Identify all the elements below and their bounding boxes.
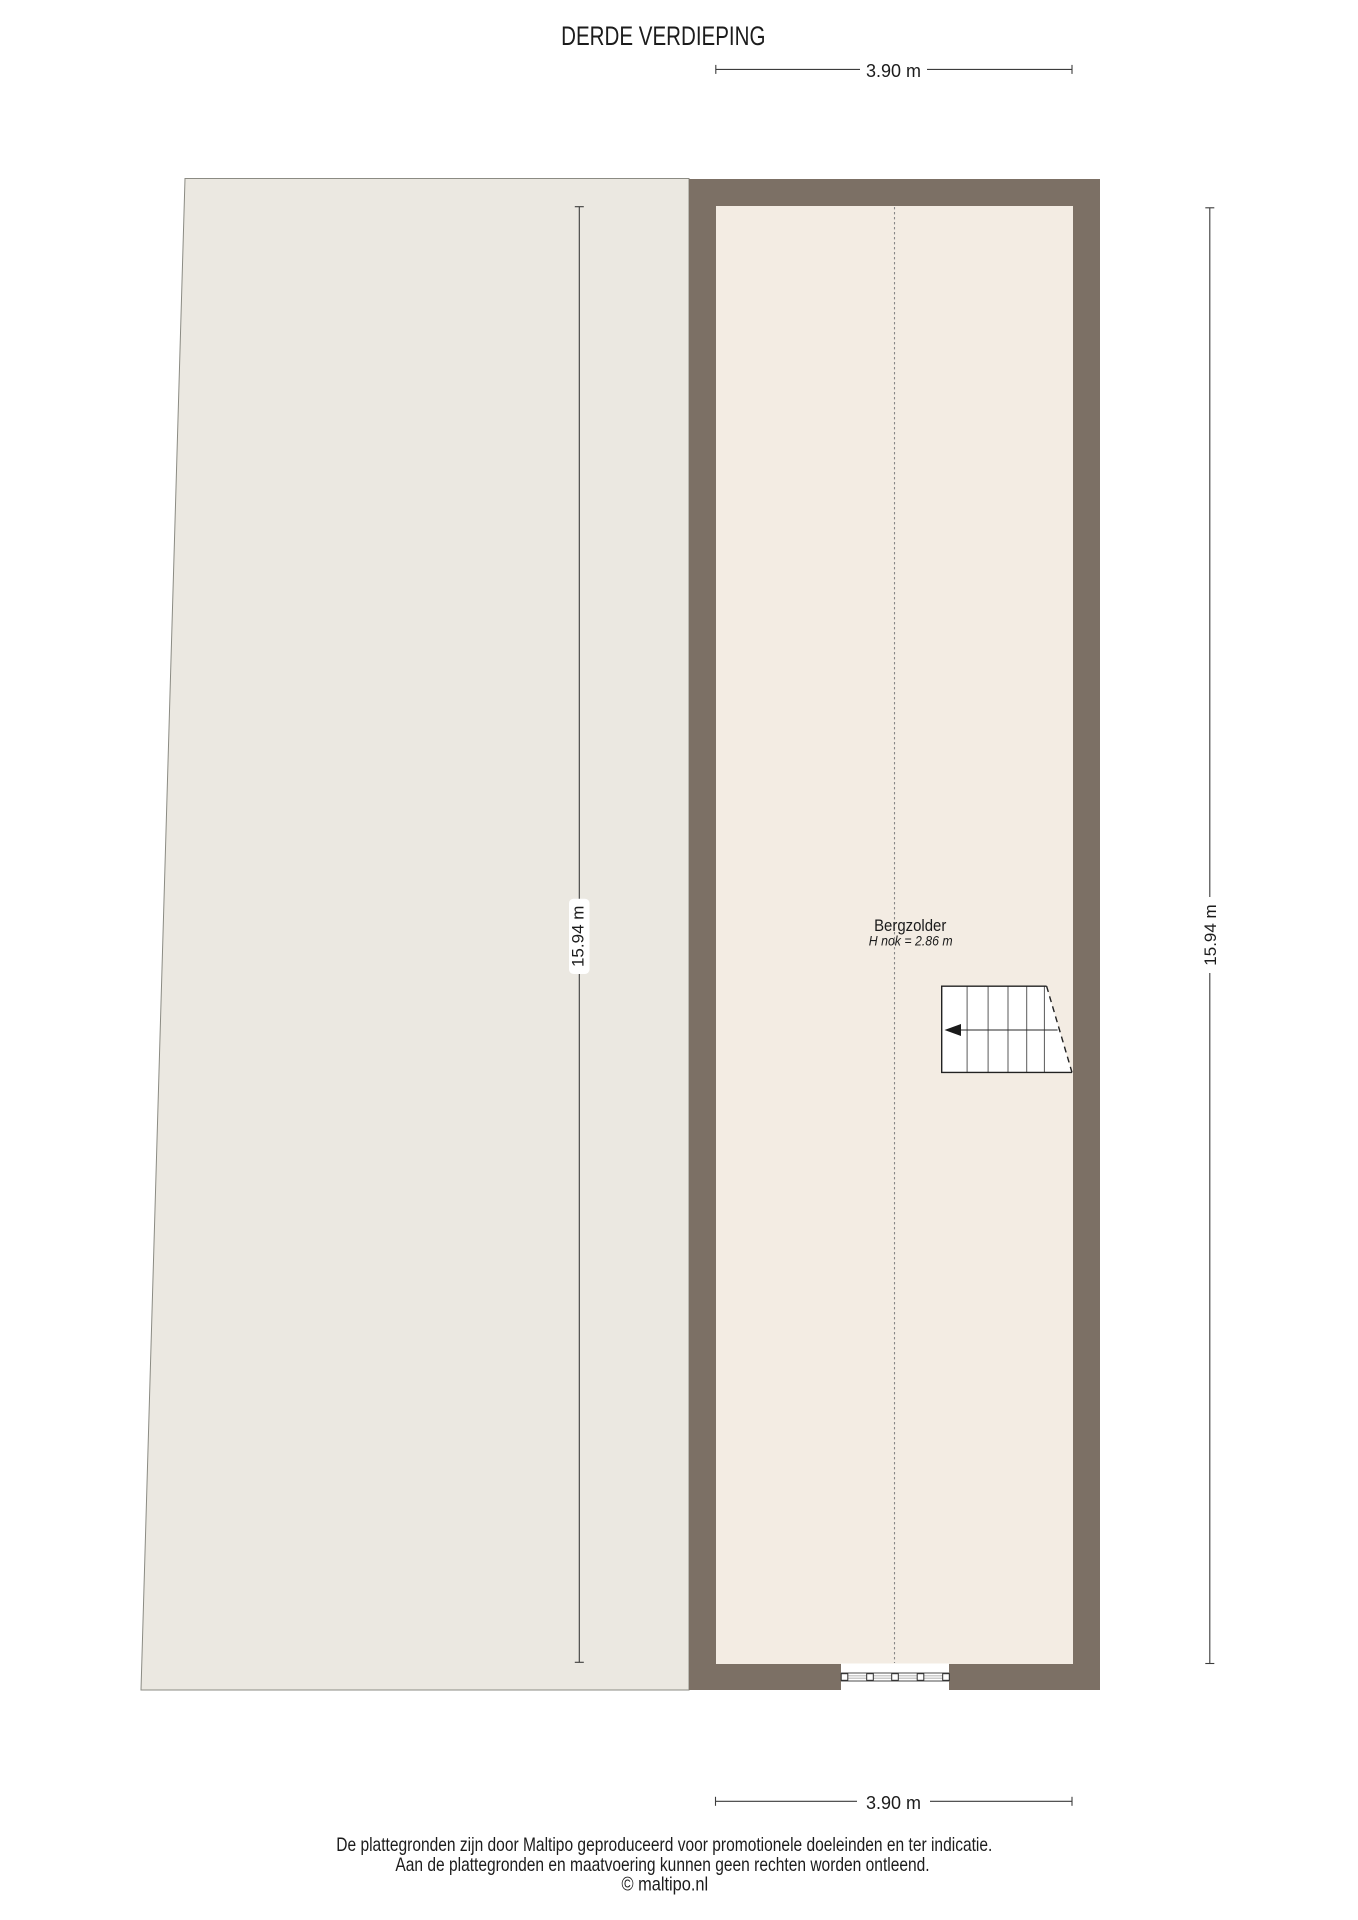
svg-text:© maltipo.nl: © maltipo.nl [621,1873,708,1895]
svg-text:3.90 m: 3.90 m [866,1793,921,1813]
svg-text:3.90 m: 3.90 m [866,61,921,81]
svg-text:DERDE VERDIEPING: DERDE VERDIEPING [561,22,765,52]
svg-text:15.94 m: 15.94 m [569,906,588,967]
svg-text:15.94 m: 15.94 m [1201,904,1220,965]
svg-text:H nok = 2.86 m: H nok = 2.86 m [869,933,953,949]
svg-text:De plattegronden zijn door Mal: De plattegronden zijn door Maltipo gepro… [336,1833,992,1855]
